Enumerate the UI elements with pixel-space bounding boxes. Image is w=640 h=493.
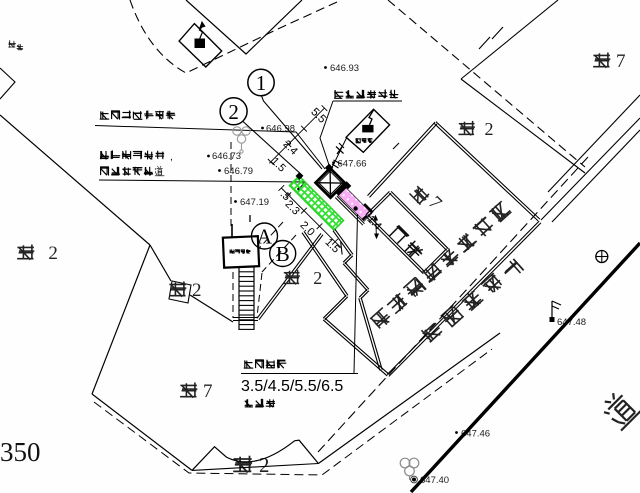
svg-text:350: 350 bbox=[0, 437, 41, 467]
svg-text:2: 2 bbox=[192, 280, 202, 301]
svg-text:646.98: 646.98 bbox=[266, 124, 295, 135]
svg-text:647.66: 647.66 bbox=[338, 159, 367, 170]
svg-text:646.73: 646.73 bbox=[212, 151, 241, 162]
svg-text:7: 7 bbox=[203, 381, 213, 402]
svg-text:2: 2 bbox=[48, 243, 58, 264]
svg-text:2: 2 bbox=[485, 119, 494, 139]
svg-text:647.19: 647.19 bbox=[240, 197, 269, 208]
svg-text:2: 2 bbox=[228, 100, 239, 124]
svg-text:,: , bbox=[170, 152, 173, 163]
svg-text:B: B bbox=[276, 242, 290, 266]
svg-text:7: 7 bbox=[616, 51, 626, 72]
svg-text:646.93: 646.93 bbox=[330, 63, 359, 74]
svg-text:1: 1 bbox=[256, 71, 267, 95]
svg-text:2: 2 bbox=[313, 268, 322, 288]
svg-text:A: A bbox=[257, 225, 273, 249]
svg-text:3.5/4.5/5.5/6.5: 3.5/4.5/5.5/6.5 bbox=[241, 378, 343, 395]
svg-text:646.79: 646.79 bbox=[224, 166, 253, 177]
